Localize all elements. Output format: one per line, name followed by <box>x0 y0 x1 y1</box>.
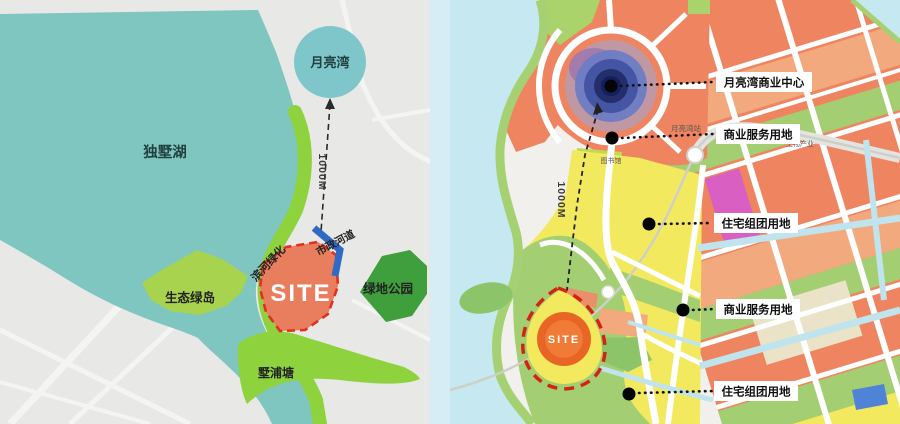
callout-3-label: 住宅组团用地 <box>722 217 791 231</box>
callout-5-dot <box>623 388 636 401</box>
site-label-left: SITE <box>270 280 331 307</box>
left-panel: 月亮湾 独墅湖 1000M 市政河道 滨河绿化 SITE 生态绿岛 绿地公园 墅… <box>0 0 450 424</box>
site-label-right: SITE <box>548 334 580 346</box>
callout-1-label: 月亮湾商业中心 <box>723 76 805 90</box>
dushu-lake-label: 独墅湖 <box>143 143 187 161</box>
map-canvas: 月亮湾 独墅湖 1000M 市政河道 滨河绿化 SITE 生态绿岛 绿地公园 墅… <box>0 0 900 424</box>
callout-3-dot <box>643 218 656 231</box>
distance-label-right: 1000M <box>555 181 567 218</box>
callout-2-dot <box>606 132 619 145</box>
tiny-label-station: 月亮湾站 <box>671 123 701 133</box>
callout-4-label: 商业服务用地 <box>724 303 793 317</box>
moon-bay-label: 月亮湾 <box>309 55 349 70</box>
tiny-label-library: 图书馆 <box>601 156 622 165</box>
left-panel-edge-water <box>430 0 450 424</box>
callout-2-label: 商业服务用地 <box>724 128 793 142</box>
callout-5-label: 住宅组团用地 <box>722 385 791 399</box>
site-analysis-figure: 月亮湾 独墅湖 1000M 市政河道 滨河绿化 SITE 生态绿岛 绿地公园 墅… <box>0 0 900 424</box>
green-parcel-topmid <box>688 0 710 14</box>
green-park-label: 绿地公园 <box>363 281 413 296</box>
site-circle-marker: SITE <box>537 312 591 366</box>
shupu-canal-label: 墅浦塘 <box>258 365 294 380</box>
right-panel: SITE 1000M 生物产业 月亮湾站 图书馆 月亮湾商业中心 商业服务用地 … <box>450 0 900 424</box>
callout-4-dot <box>677 304 690 317</box>
distance-label-left: 1000M <box>316 153 328 190</box>
callout-1-dot <box>605 80 618 93</box>
eco-island-label: 生态绿岛 <box>165 290 215 305</box>
